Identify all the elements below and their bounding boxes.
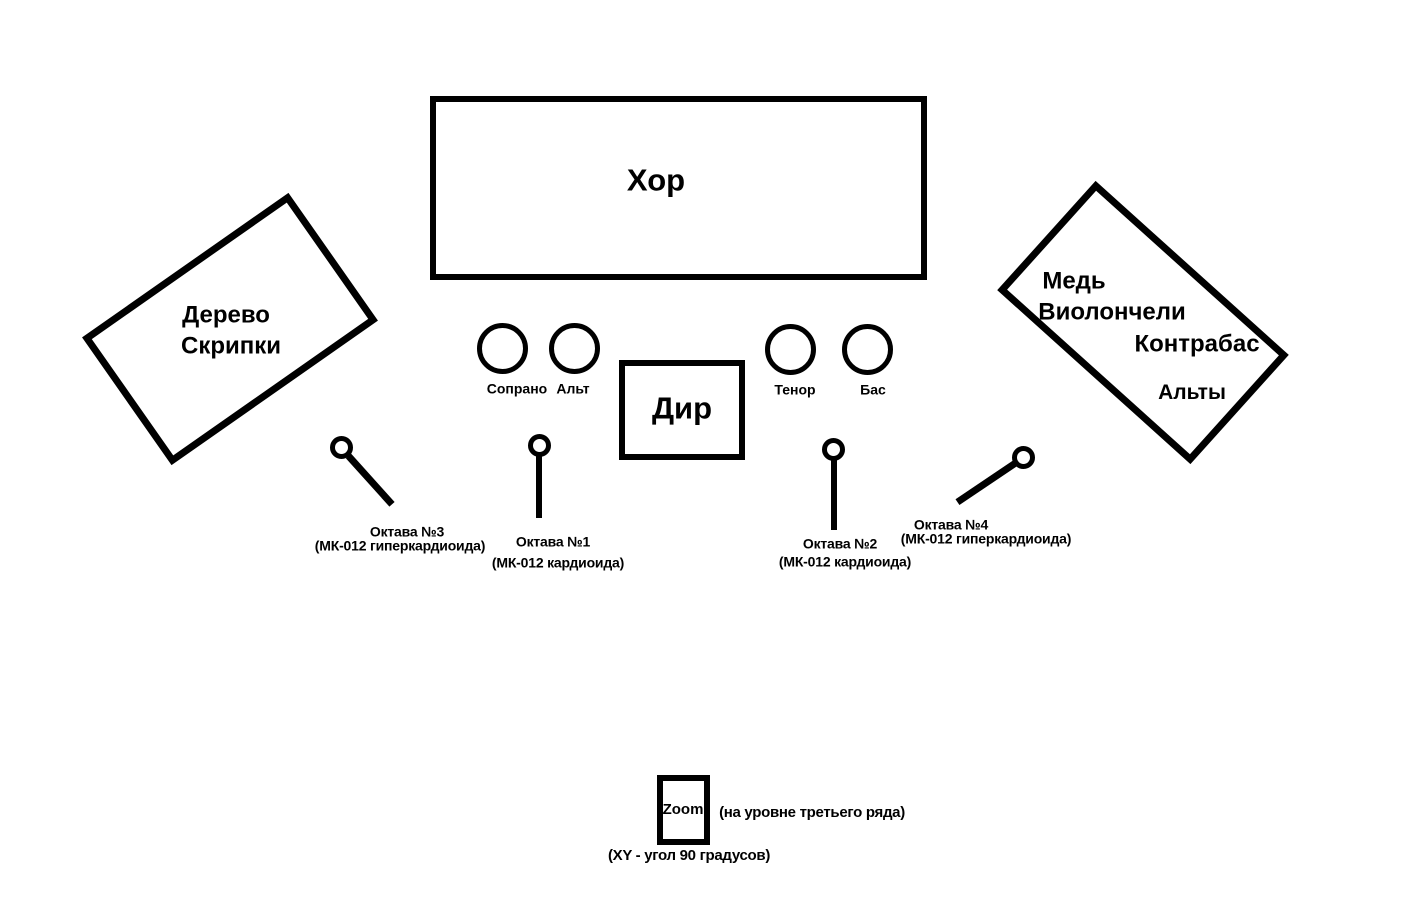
mic-stem — [536, 456, 542, 518]
cellos-label: Виолончели — [1038, 299, 1186, 324]
woodwinds-violins-box — [82, 193, 378, 465]
violins-label: Скрипки — [181, 333, 281, 358]
violas-label: Альты — [1158, 382, 1226, 404]
mic-head-icon — [822, 438, 845, 461]
bass-circle — [842, 324, 893, 375]
mic1-spec-label: (МК-012 кардиоида) — [492, 556, 624, 571]
stage-diagram: Хор Дерево Скрипки Медь Виолончели Контр… — [0, 0, 1413, 899]
soprano-label: Сопрано — [487, 382, 547, 397]
zoom-recorder-label: Zoom — [663, 802, 704, 818]
double-bass-label: Контрабас — [1134, 331, 1259, 356]
tenor-label: Тенор — [774, 383, 815, 398]
alto-circle — [549, 323, 600, 374]
mic3-spec-label: (МК-012 гиперкардиоида) — [315, 539, 485, 554]
note-angle-label: (XY - угол 90 градусов) — [608, 848, 770, 864]
tenor-circle — [765, 324, 816, 375]
conductor-label: Дир — [652, 393, 712, 426]
mic2-spec-label: (МК-012 кардиоида) — [779, 555, 911, 570]
mic1-name-label: Октава №1 — [516, 535, 590, 550]
bass-label: Бас — [860, 383, 886, 398]
mic-stem — [956, 460, 1018, 505]
woodwinds-label: Дерево — [182, 302, 270, 327]
mic-head-icon — [528, 434, 551, 457]
alto-label: Альт — [556, 382, 589, 397]
soprano-circle — [477, 323, 528, 374]
brass-label: Медь — [1042, 268, 1105, 293]
mic-stem — [831, 460, 837, 530]
note-level-label: (на уровне третьего ряда) — [719, 805, 905, 821]
mic2-name-label: Октава №2 — [803, 537, 877, 552]
mic4-spec-label: (МК-012 гиперкардиоида) — [901, 532, 1071, 547]
mic-stem — [346, 454, 395, 507]
choir-label: Хор — [627, 165, 685, 198]
